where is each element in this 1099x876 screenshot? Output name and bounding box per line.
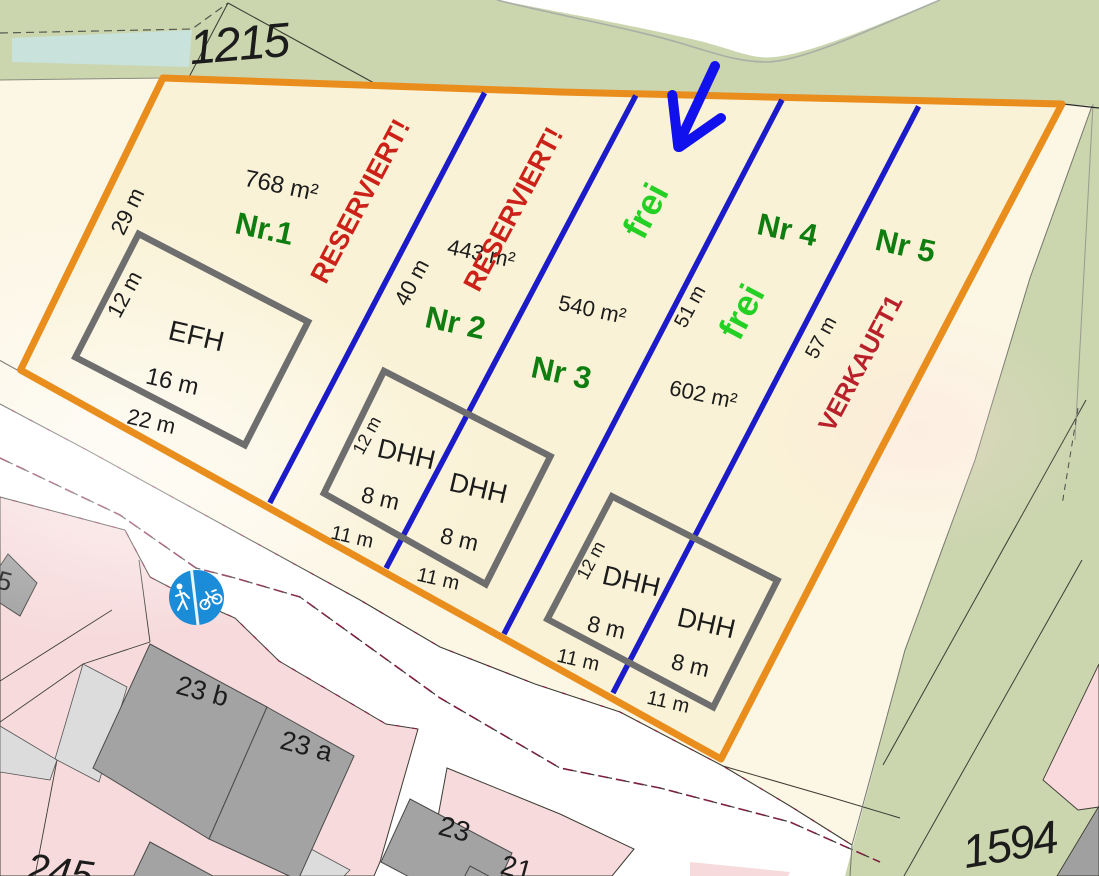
svg-text:1215: 1215 — [187, 14, 292, 76]
